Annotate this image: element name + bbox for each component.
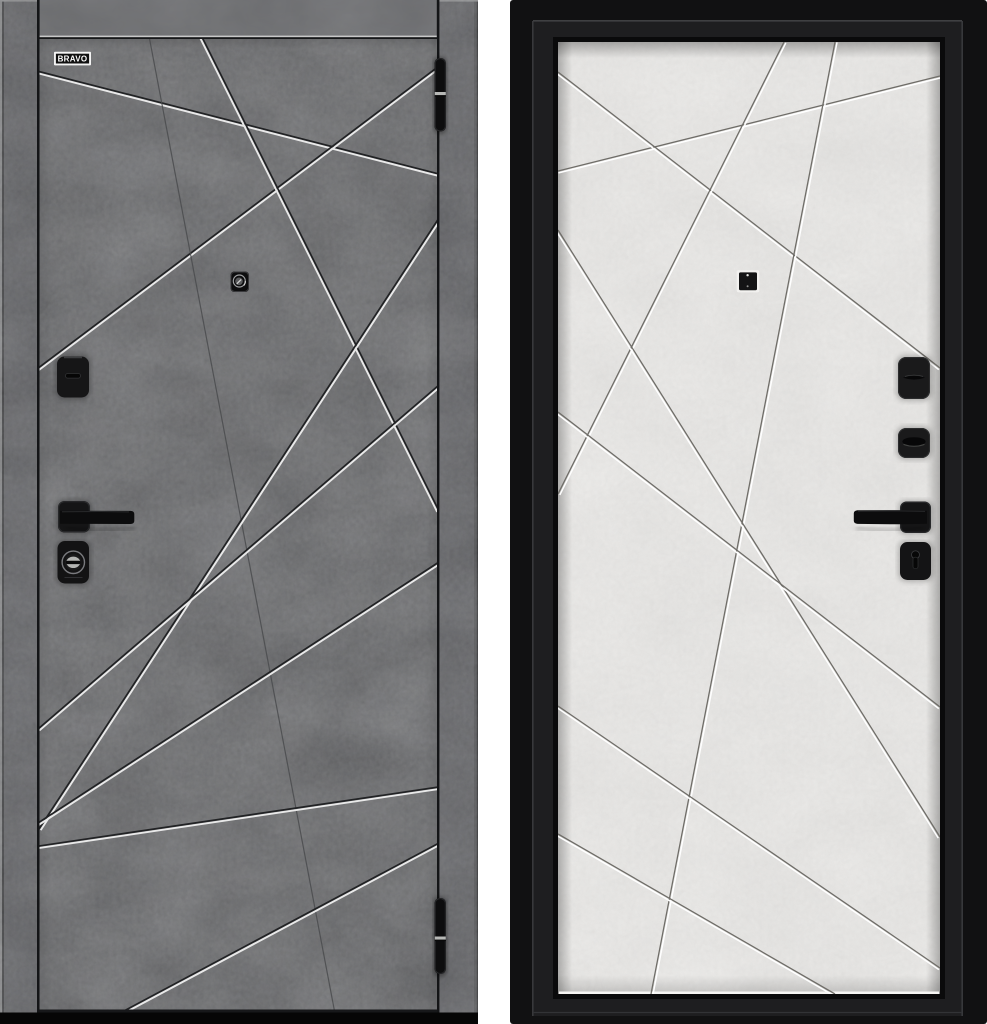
- svg-text:BRAVO: BRAVO: [58, 55, 88, 64]
